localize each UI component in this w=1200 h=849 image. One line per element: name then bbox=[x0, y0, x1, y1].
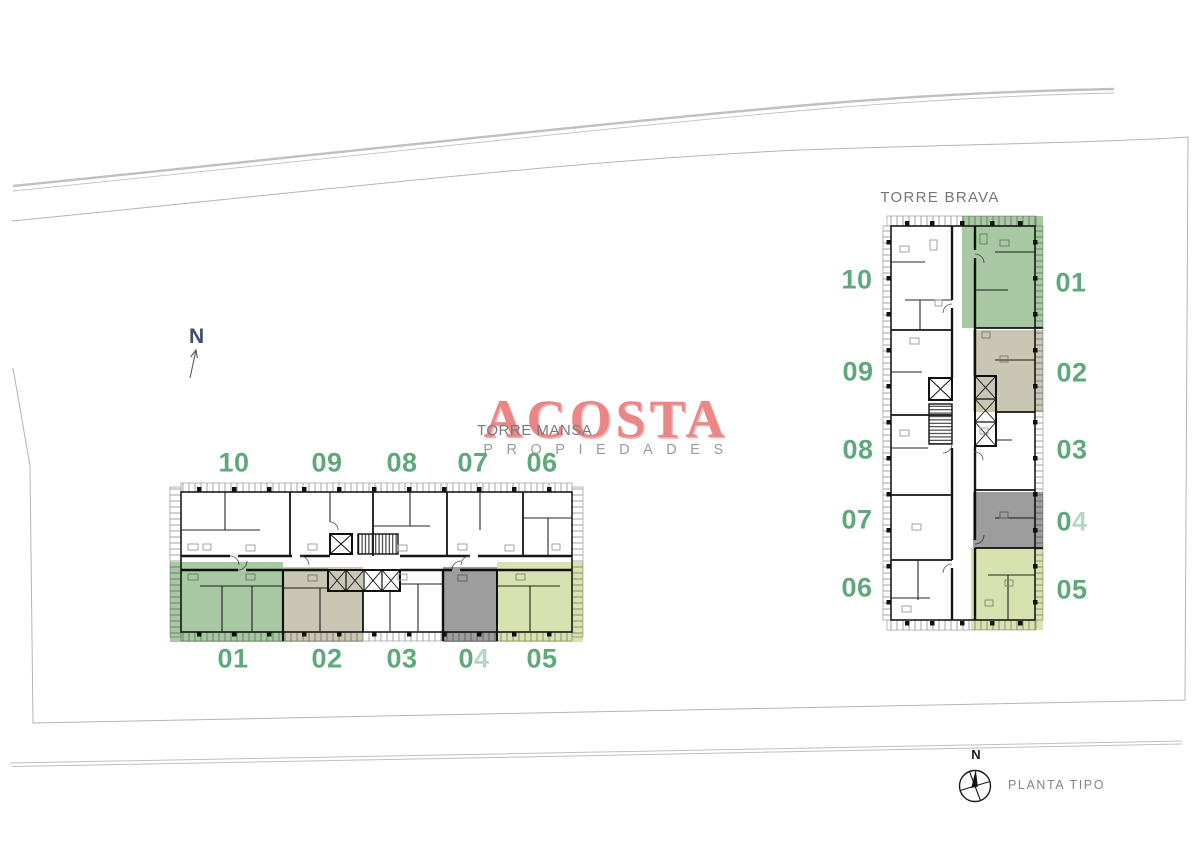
mansa-unit-label-07: 07 bbox=[457, 450, 488, 477]
north-arrow-icon bbox=[190, 350, 197, 378]
mansa-unit-label-06: 06 bbox=[526, 450, 557, 477]
compass-north-label: N bbox=[971, 748, 980, 761]
north-label: N bbox=[189, 326, 204, 347]
brava-unit-label-09: 09 bbox=[842, 359, 873, 386]
plan-type-caption: PLANTA TIPO bbox=[1008, 779, 1105, 792]
brava-unit-label-03: 03 bbox=[1056, 437, 1087, 464]
mansa-unit-label-01: 01 bbox=[217, 646, 248, 673]
mansa-unit-label-10: 10 bbox=[218, 450, 249, 477]
mansa-unit-label-05: 05 bbox=[526, 646, 557, 673]
mansa-unit-label-08: 08 bbox=[386, 450, 417, 477]
brava-unit-label-10: 10 bbox=[841, 267, 872, 294]
compass-rose-icon bbox=[960, 770, 991, 802]
brava-unit-label-06: 06 bbox=[841, 575, 872, 602]
brava-unit-label-07: 07 bbox=[841, 507, 872, 534]
watermark-subtitle: PROPIEDADES bbox=[483, 443, 736, 458]
site-plan-page: ACOSTA PROPIEDADES TORRE MANSA TORRE BRA… bbox=[0, 0, 1200, 849]
brava-unit-label-01: 01 bbox=[1055, 270, 1086, 297]
torre-brava-title: TORRE BRAVA bbox=[880, 190, 999, 205]
mansa-unit-label-04: 04 bbox=[458, 646, 489, 673]
brava-unit-label-08: 08 bbox=[842, 437, 873, 464]
mansa-unit-label-09: 09 bbox=[311, 450, 342, 477]
mansa-unit-label-02: 02 bbox=[311, 646, 342, 673]
brava-unit-label-02: 02 bbox=[1056, 360, 1087, 387]
brava-unit-label-05: 05 bbox=[1056, 577, 1087, 604]
torre-mansa-title: TORRE MANSA bbox=[477, 423, 592, 438]
torre-mansa-plan bbox=[170, 483, 583, 642]
brava-unit-label-04: 04 bbox=[1056, 509, 1087, 536]
torre-brava-plan bbox=[883, 216, 1043, 630]
mansa-unit-label-03: 03 bbox=[386, 646, 417, 673]
